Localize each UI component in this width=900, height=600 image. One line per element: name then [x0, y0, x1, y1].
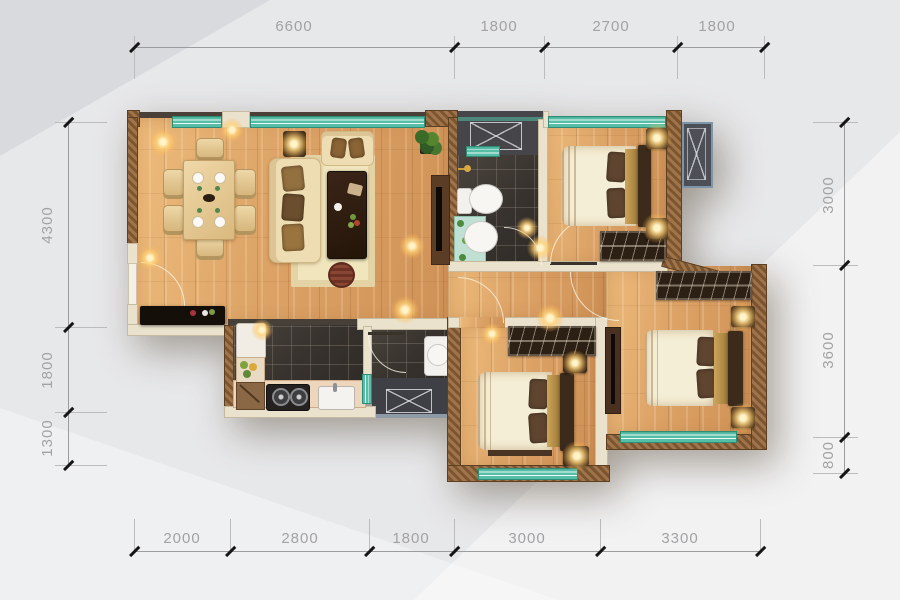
foot-bench: [488, 450, 552, 456]
wall-pier: [127, 243, 138, 264]
prep-counter: [236, 357, 265, 383]
cup: [334, 203, 342, 211]
cup: [197, 186, 202, 191]
duct-shaft-edge: [372, 414, 452, 418]
bed-headboard: [728, 331, 743, 406]
side-table: [283, 131, 306, 157]
bedroom1-east-wall: [666, 110, 682, 268]
living-window: [250, 116, 425, 128]
bed-fold: [645, 330, 658, 406]
bathroom2-door-leaf: [368, 332, 405, 335]
bed-pillow: [528, 379, 549, 410]
dining-chair: [163, 169, 185, 199]
armchair-pillow: [330, 137, 348, 159]
dining-table: [183, 160, 235, 240]
bed-pillow: [606, 151, 627, 182]
nightstand: [731, 306, 755, 327]
bedroom1-window: [548, 116, 666, 128]
bedroom3-window: [620, 431, 737, 443]
fridge: [236, 323, 266, 359]
duct-x-symbol: [386, 389, 432, 413]
shower-head-knob: [464, 165, 471, 172]
dining-chair: [234, 169, 256, 199]
sofa-pillow: [281, 193, 305, 221]
flower-decor: [350, 214, 356, 220]
toilet-bowl: [469, 184, 503, 214]
bedroom2-window: [478, 468, 578, 480]
bathroom1-east-wall: [538, 119, 548, 269]
burner: [272, 388, 290, 406]
bed-fold: [562, 146, 576, 226]
dining-chair: [196, 237, 224, 260]
bed-runner: [625, 149, 638, 224]
plate: [192, 216, 204, 228]
duct-shaft-window-hint: [456, 117, 544, 121]
bed-fold: [478, 372, 491, 450]
center-bowl: [203, 194, 215, 202]
plate: [214, 172, 226, 184]
bedroom2-west-wall: [447, 317, 461, 482]
left-wall: [127, 117, 138, 245]
bedroom3-tv-screen: [611, 334, 615, 404]
tray: [347, 182, 363, 196]
nightstand: [563, 446, 589, 466]
sofa-pillow: [281, 165, 305, 192]
bed-headboard: [638, 145, 651, 227]
entry-door-leaf: [128, 263, 137, 305]
plate: [192, 172, 204, 184]
burner: [290, 388, 308, 406]
sideboard: [140, 306, 225, 325]
coffee-table: [327, 171, 367, 259]
vegetable-basket: [240, 361, 248, 369]
plant-foliage: [415, 130, 429, 144]
bedroom3-wardrobe: [656, 271, 752, 300]
armchair-pillow: [348, 137, 366, 159]
tv-screen: [436, 187, 442, 251]
ac-platform-x: [687, 128, 706, 180]
stool: [328, 262, 355, 288]
nightstand: [646, 218, 668, 239]
living-south-wall: [127, 324, 228, 336]
armchair: [321, 131, 374, 166]
floor-plan-page: 6600 1800 2700 1800 2000 2800 1800 3000 …: [0, 0, 900, 600]
sofa-pillow: [281, 223, 304, 251]
nightstand: [563, 354, 587, 373]
dining-chair: [163, 205, 185, 235]
faucet: [333, 383, 337, 392]
wall-pier: [222, 111, 250, 128]
bed-headboard: [560, 373, 574, 451]
bedroom2-wardrobe: [508, 326, 596, 356]
bed-pillow: [606, 188, 627, 219]
bathroom2-window: [362, 374, 372, 404]
dining-chair: [234, 205, 256, 235]
bathroom1-window: [466, 146, 500, 157]
bed-pillow: [528, 412, 549, 443]
bed-runner: [714, 333, 728, 404]
nightstand: [646, 128, 668, 149]
plate: [214, 216, 226, 228]
shower-basin: [427, 344, 449, 366]
nightstand: [731, 407, 755, 428]
living-window: [172, 116, 222, 128]
sideboard-decor: [190, 310, 196, 316]
bed-runner: [547, 375, 560, 447]
wash-basin: [464, 221, 498, 253]
dining-chair: [196, 138, 224, 161]
floor-plan: [0, 0, 900, 600]
vanity-plant: [457, 220, 464, 227]
